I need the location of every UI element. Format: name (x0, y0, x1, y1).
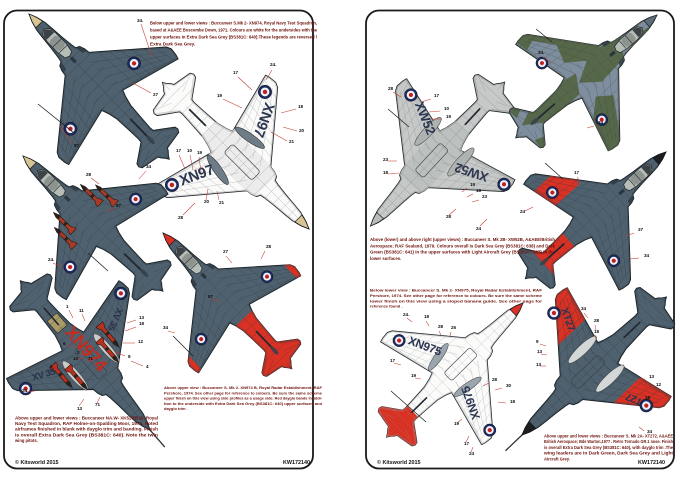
svg-text:Above upper and lower views :: Above upper and lower views : Buccaneer … (544, 434, 673, 439)
svg-text:4: 4 (146, 364, 149, 369)
svg-text:87: 87 (116, 203, 122, 208)
svg-text:is overall Extra Dark Sea Grey: is overall Extra Dark Sea Grey (BS381C: … (544, 445, 674, 450)
svg-text:KW172140: KW172140 (283, 460, 310, 466)
svg-text:25: 25 (451, 325, 457, 330)
svg-text:© Kitsworld 2015: © Kitsworld 2015 (377, 459, 421, 466)
svg-text:28: 28 (86, 172, 92, 177)
svg-text:34.: 34. (538, 50, 544, 55)
svg-text:9: 9 (50, 364, 53, 369)
svg-text:34: 34 (163, 325, 169, 330)
svg-text:Pershore, 1974. See other page: Pershore, 1974. See other page for refer… (370, 293, 543, 298)
svg-text:24: 24 (520, 209, 526, 214)
svg-text:17: 17 (233, 70, 239, 75)
svg-text:28: 28 (266, 244, 272, 249)
svg-text:21: 21 (219, 200, 225, 205)
svg-text:30: 30 (506, 383, 512, 388)
svg-text:28: 28 (178, 215, 184, 220)
svg-text:19: 19 (446, 114, 452, 119)
svg-text:24: 24 (469, 451, 475, 456)
svg-text:© Kitsworld 2015: © Kitsworld 2015 (15, 459, 59, 466)
svg-text:17: 17 (176, 148, 182, 153)
svg-text:12: 12 (138, 339, 144, 344)
svg-text:28: 28 (492, 377, 498, 382)
svg-text:Below lower view : Buccaneer S: Below lower view : Buccaneer S. Mk 2- XN… (370, 288, 543, 293)
svg-text:10: 10 (444, 106, 450, 111)
svg-text:17: 17 (434, 93, 440, 98)
svg-text:21: 21 (289, 139, 295, 144)
svg-text:28: 28 (446, 214, 452, 219)
svg-text:Aerospace; RAF Sealand, 1979.: Aerospace; RAF Sealand, 1979. Colours ov… (370, 243, 556, 248)
svg-text:24.: 24. (48, 257, 54, 262)
svg-text:34: 34 (146, 164, 152, 169)
svg-text:Aircraft Grey.: Aircraft Grey. (544, 456, 570, 461)
svg-text:28: 28 (594, 318, 600, 323)
svg-text:71: 71 (88, 356, 94, 361)
svg-text:19: 19 (217, 93, 223, 98)
svg-text:34: 34 (644, 253, 650, 258)
svg-text:18: 18 (645, 395, 651, 400)
svg-text:Above upper and lower views :: Above upper and lower views : Buccaneer … (15, 416, 158, 421)
svg-text:Pershore, 1974. See other page: Pershore, 1974. See other page for refer… (164, 390, 323, 395)
svg-text:34: 34 (647, 429, 653, 434)
svg-text:lower surfaces.: lower surfaces. (370, 256, 401, 261)
svg-text:18: 18 (383, 170, 389, 175)
svg-text:8: 8 (128, 354, 131, 359)
svg-text:tion to the underside with Ext: tion to the underside with Extra Dark Se… (164, 401, 323, 406)
svg-text:17: 17 (390, 358, 396, 363)
svg-text:28: 28 (438, 324, 444, 329)
svg-text:19: 19 (470, 182, 476, 187)
svg-text:23: 23 (482, 194, 488, 199)
svg-text:upper surfaces in Extra Dark: upper surfaces in Extra Dark Sea Grey (B… (150, 35, 318, 40)
svg-text:28: 28 (388, 86, 394, 91)
svg-text:9: 9 (536, 339, 539, 344)
svg-text:13: 13 (649, 374, 655, 379)
svg-text:13: 13 (77, 406, 83, 411)
svg-text:Above upper view : Buccaneer S: Above upper view : Buccaneer S. Mk 2- XN… (164, 385, 323, 390)
svg-text:upper finish on this view usin: upper finish on this view using side pro… (164, 396, 323, 401)
svg-text:13: 13 (139, 315, 145, 320)
svg-text:34: 34 (598, 120, 604, 125)
svg-text:23: 23 (383, 157, 389, 162)
svg-text:Below upper and lower views :: Below upper and lower views : Buccaneer … (150, 21, 317, 26)
svg-text:18: 18 (510, 399, 516, 404)
svg-text:Navy Test Squadron, RAF Holme: Navy Test Squadron, RAF Holme-on-Spaldin… (15, 421, 159, 426)
svg-text:British Aerospace; Bde Warton: British Aerospace; Bde Warton,1977 . Ret… (544, 439, 673, 444)
svg-text:Extra Dark Sea Grey.: Extra Dark Sea Grey. (150, 42, 195, 47)
svg-text:34: 34 (581, 306, 587, 311)
svg-text:17: 17 (464, 441, 470, 446)
svg-text:10: 10 (73, 356, 79, 361)
svg-text:19: 19 (197, 150, 203, 155)
svg-text:11: 11 (79, 308, 84, 313)
svg-text:27: 27 (153, 92, 159, 97)
svg-text:19: 19 (454, 421, 460, 426)
svg-text:18: 18 (139, 321, 145, 326)
svg-text:lower finish on this view usin: lower finish on this view using a sloped… (370, 298, 543, 303)
svg-text:18: 18 (476, 188, 482, 193)
svg-text:Green (BS381C: 641) in the upp: Green (BS381C: 641) in the upper surface… (370, 250, 556, 255)
svg-text:12: 12 (656, 382, 662, 387)
svg-text:reference found .: reference found . (370, 304, 402, 309)
svg-text:19: 19 (411, 373, 417, 378)
svg-text:13: 13 (536, 362, 542, 367)
svg-text:87: 87 (208, 294, 214, 299)
svg-text:87: 87 (74, 143, 80, 148)
svg-text:24.: 24. (270, 62, 276, 67)
svg-text:20: 20 (204, 199, 210, 204)
svg-text:24.: 24. (403, 312, 409, 317)
svg-text:2: 2 (77, 350, 80, 355)
svg-text:wing leaders are in Dark Green: wing leaders are in Dark Green, Dark Sea… (543, 451, 674, 456)
svg-text:20: 20 (299, 128, 305, 133)
svg-text:1: 1 (66, 304, 69, 309)
svg-text:6: 6 (63, 341, 66, 346)
svg-text:wing pitots.: wing pitots. (14, 438, 38, 443)
svg-text:17: 17 (574, 170, 580, 175)
svg-text:71: 71 (95, 402, 101, 407)
svg-text:based at A&AEE Boscombe Down,: based at A&AEE Boscombe Down, 1971. Colo… (150, 28, 317, 33)
svg-text:18: 18 (298, 104, 304, 109)
svg-text:dayglo trim .: dayglo trim . (164, 406, 188, 411)
svg-text:10: 10 (187, 148, 193, 153)
svg-text:18: 18 (594, 329, 600, 334)
svg-text:airframes finished in blank wi: airframes finished in blank with dayglo … (15, 427, 159, 432)
svg-text:is overall Extra Dark Sea Grey: is overall Extra Dark Sea Grey (BS381C: … (15, 432, 159, 437)
svg-text:18: 18 (424, 314, 430, 319)
svg-text:24: 24 (22, 388, 28, 393)
svg-text:13: 13 (537, 349, 543, 354)
svg-text:24: 24 (476, 226, 482, 231)
svg-text:KW172140: KW172140 (638, 460, 665, 466)
svg-text:37: 37 (638, 227, 644, 232)
svg-text:34.: 34. (137, 18, 143, 23)
svg-text:27: 27 (223, 249, 229, 254)
svg-text:Above (lower) and above right: Above (lower) and above right (upper vie… (370, 237, 555, 242)
